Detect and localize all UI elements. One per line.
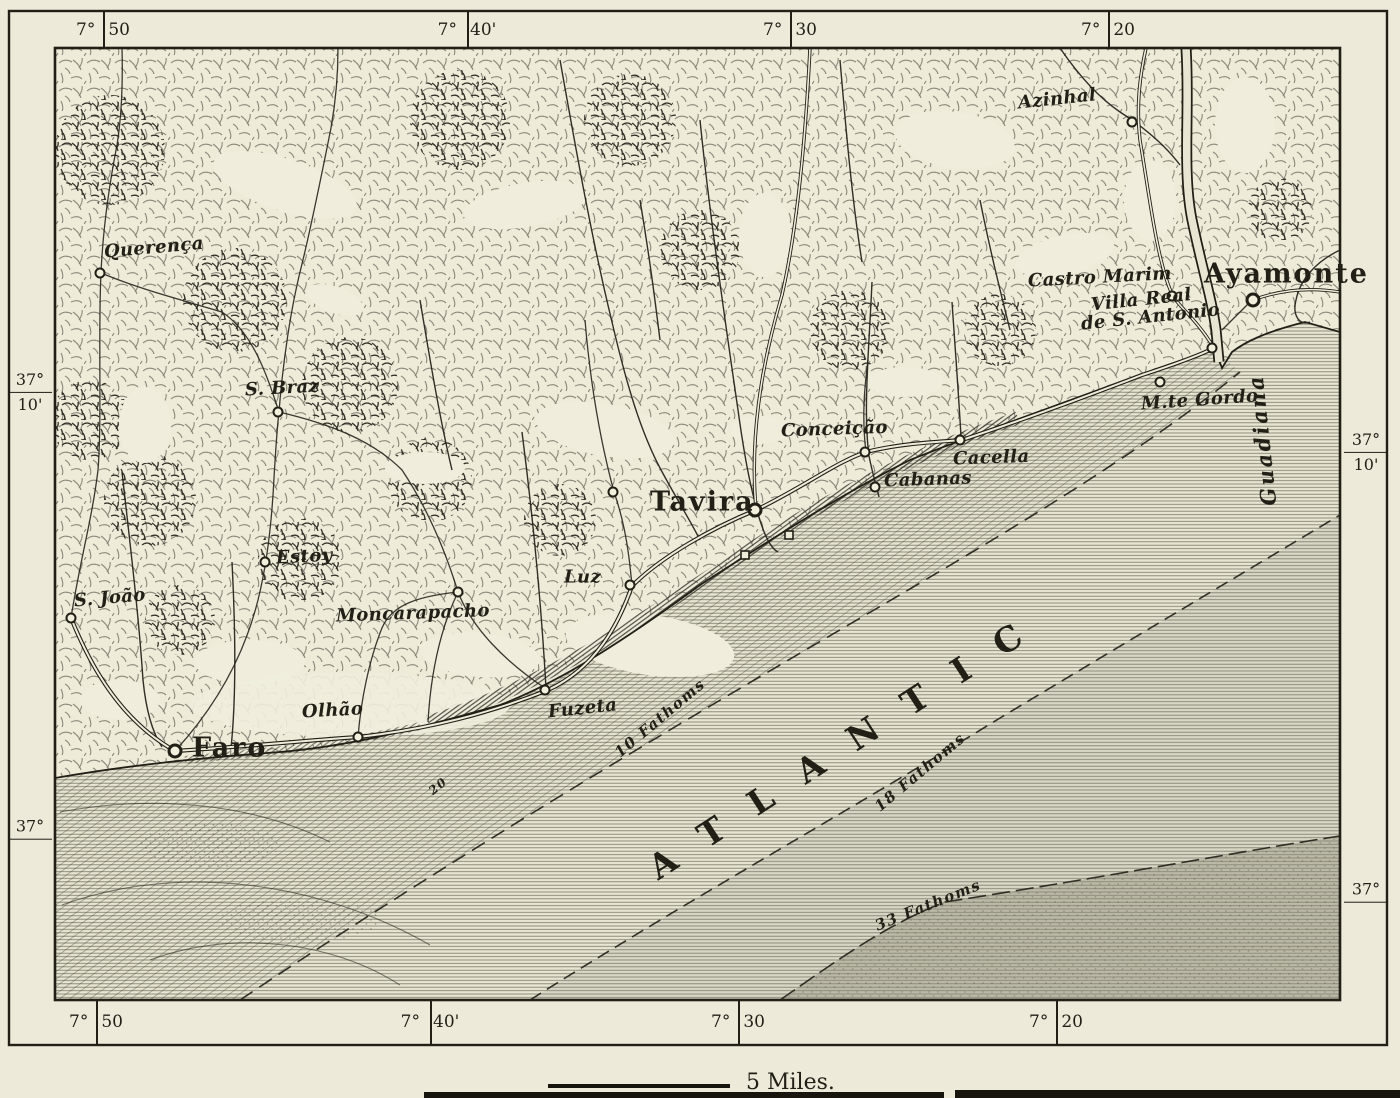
scale-bar-line	[548, 1084, 730, 1088]
scale-bar: 5 Miles.	[548, 1070, 888, 1094]
engraved-map-page: QuerençaAzinhalCastro MarimAyamonteVilla…	[0, 0, 1400, 1098]
page-edge-strip	[955, 1090, 1400, 1098]
map-canvas	[0, 0, 1400, 1098]
page-edge-strip	[424, 1092, 944, 1098]
